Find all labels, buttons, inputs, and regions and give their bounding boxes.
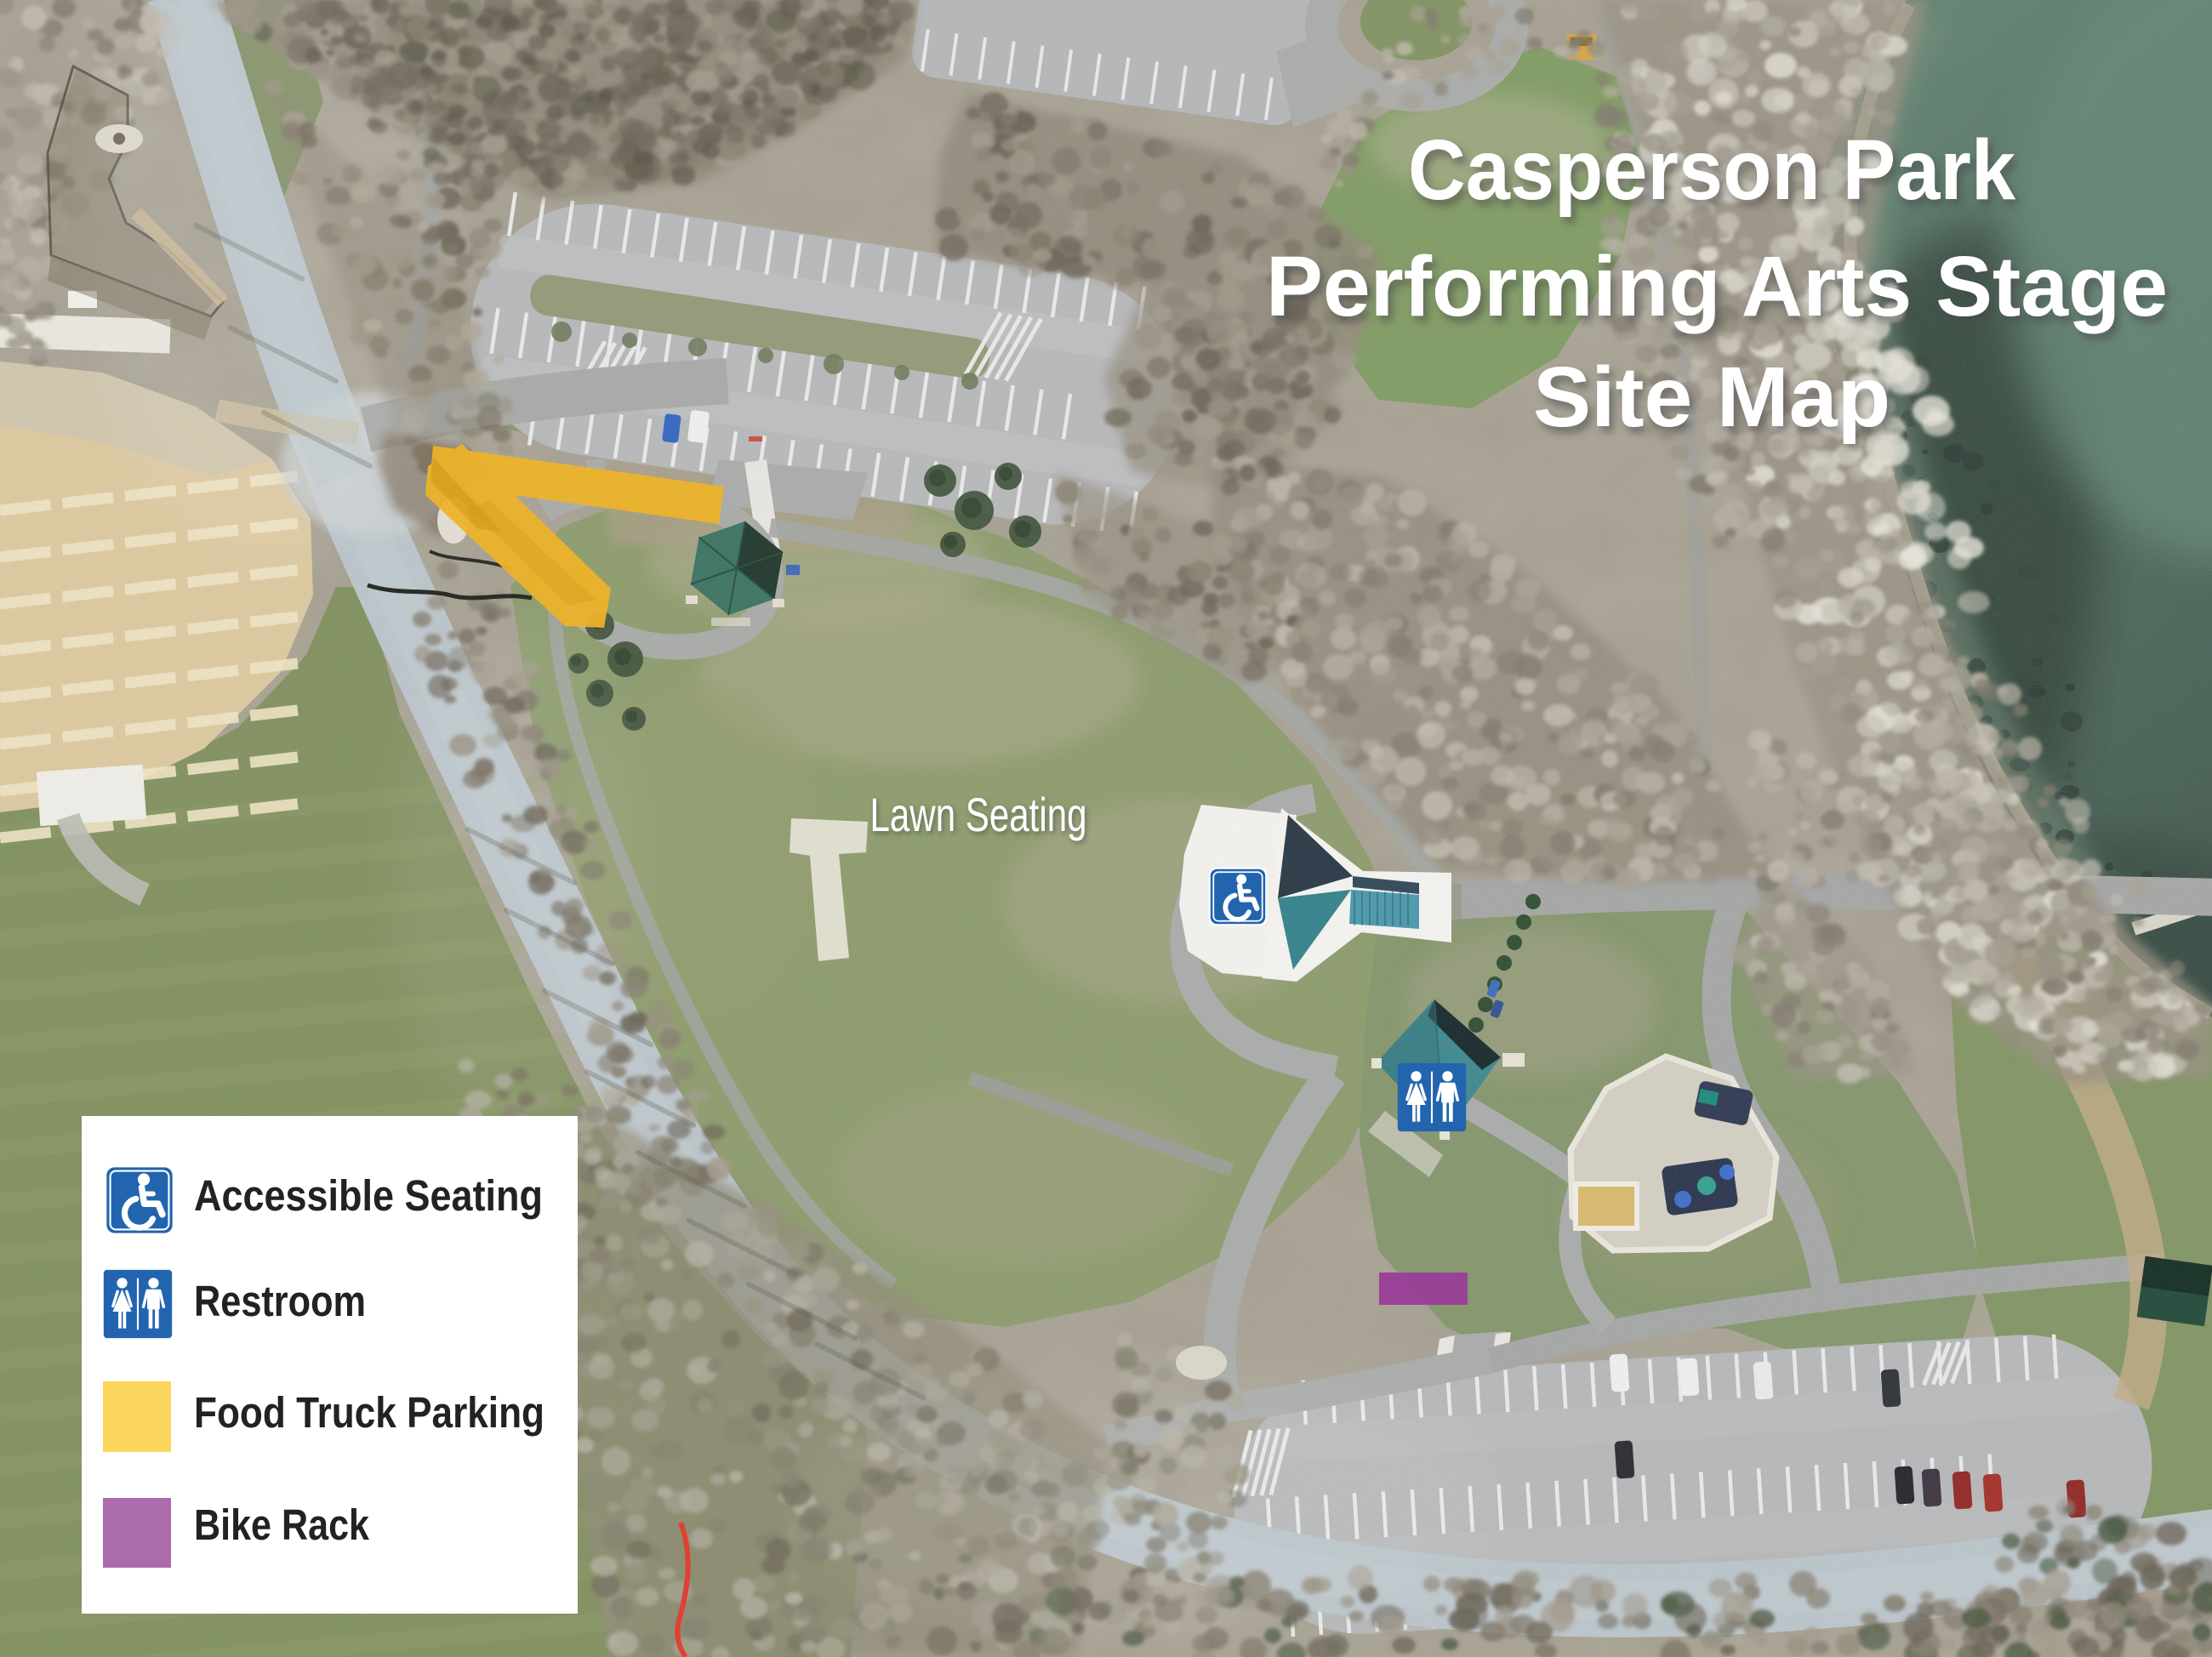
svg-text:Site Map: Site Map (1533, 350, 1890, 445)
svg-text:Lawn Seating: Lawn Seating (870, 788, 1087, 841)
svg-text:Performing Arts Stage: Performing Arts Stage (1266, 239, 2168, 334)
svg-text:Casperson Park: Casperson Park (1408, 122, 2015, 218)
svg-text:Food Truck Parking: Food Truck Parking (194, 1388, 544, 1437)
svg-text:Accessible Seating: Accessible Seating (194, 1171, 543, 1220)
svg-text:Restroom: Restroom (194, 1277, 366, 1325)
svg-text:Bike Rack: Bike Rack (194, 1500, 370, 1549)
